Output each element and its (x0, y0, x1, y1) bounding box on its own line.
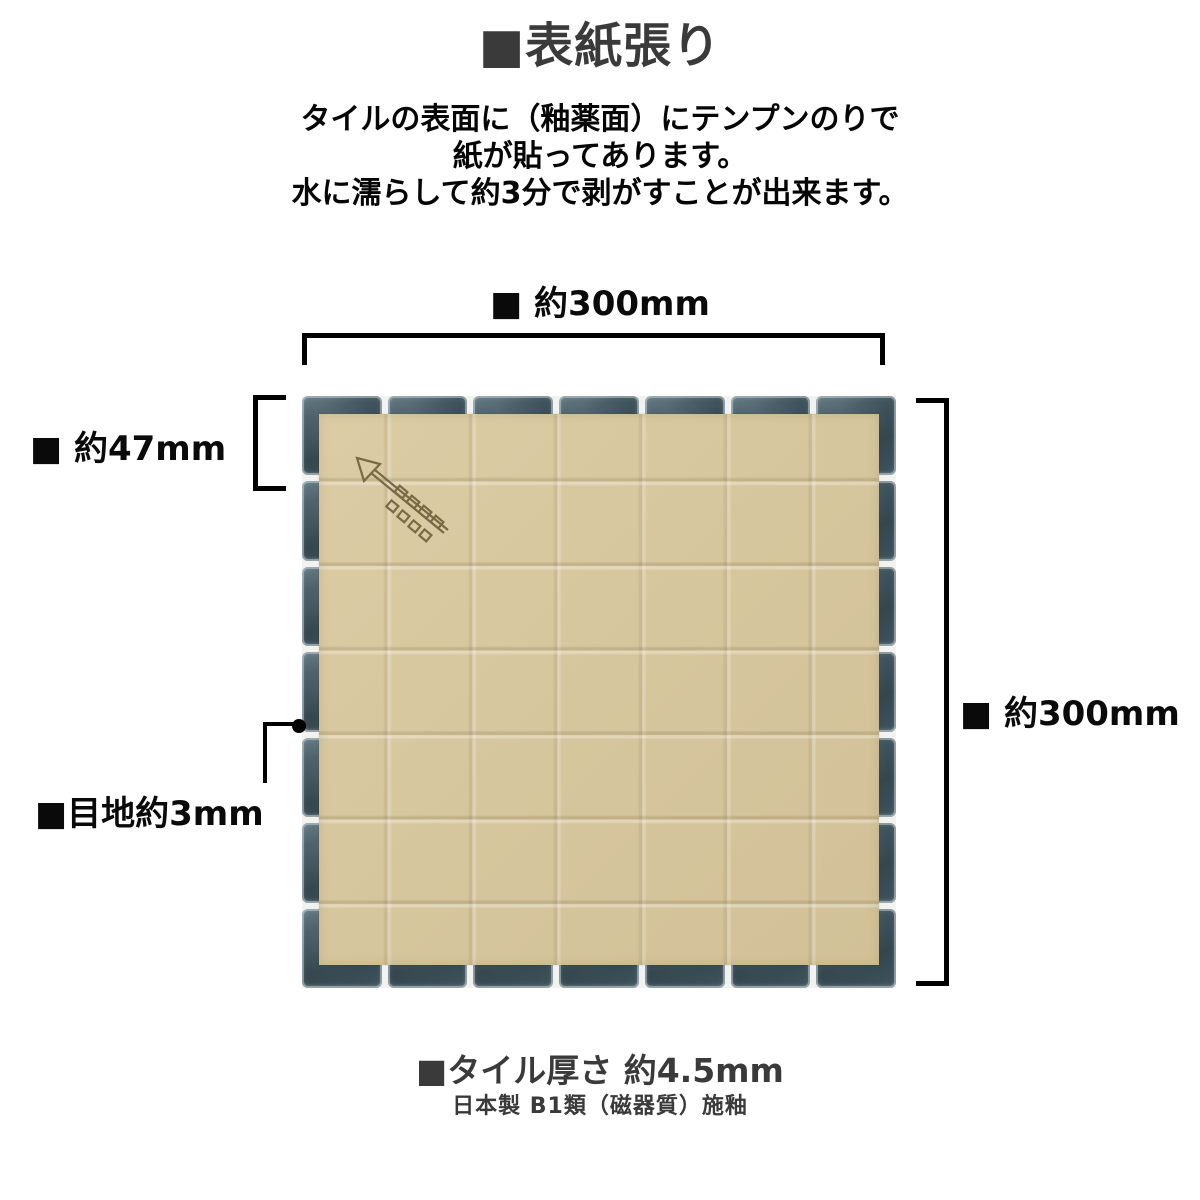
tile-size-bracket (253, 395, 286, 491)
description-line-1: タイルの表面に（釉薬面）にテンプンのりで (0, 101, 1200, 138)
arrow-mark-icon (347, 450, 465, 548)
description-line-2: 紙が貼ってあります。 (0, 138, 1200, 175)
height-label: ■ 約300mm (960, 686, 1180, 735)
paper-cover (319, 414, 879, 965)
tile-size-label: ■ 約47mm (30, 421, 226, 470)
tile-sheet (302, 396, 896, 988)
description-line-3: 水に濡らして約3分で剥がすことが出来ます。 (0, 175, 1200, 212)
joint-pointer-dot (292, 719, 306, 733)
description: タイルの表面に（釉薬面）にテンプンのりで 紙が貼ってあります。 水に濡らして約3… (0, 101, 1200, 212)
top-width-label: ■ 約300mm (0, 276, 1200, 325)
page-title: ■表紙張り (0, 6, 1200, 76)
height-bracket (916, 398, 949, 986)
footer-thickness: ■タイル厚さ 約4.5mm (0, 1044, 1200, 1092)
footer-origin: 日本製 B1類（磁器質）施釉 (0, 1088, 1200, 1120)
top-width-bracket (302, 333, 885, 365)
joint-label: ■目地約3mm (35, 786, 264, 835)
